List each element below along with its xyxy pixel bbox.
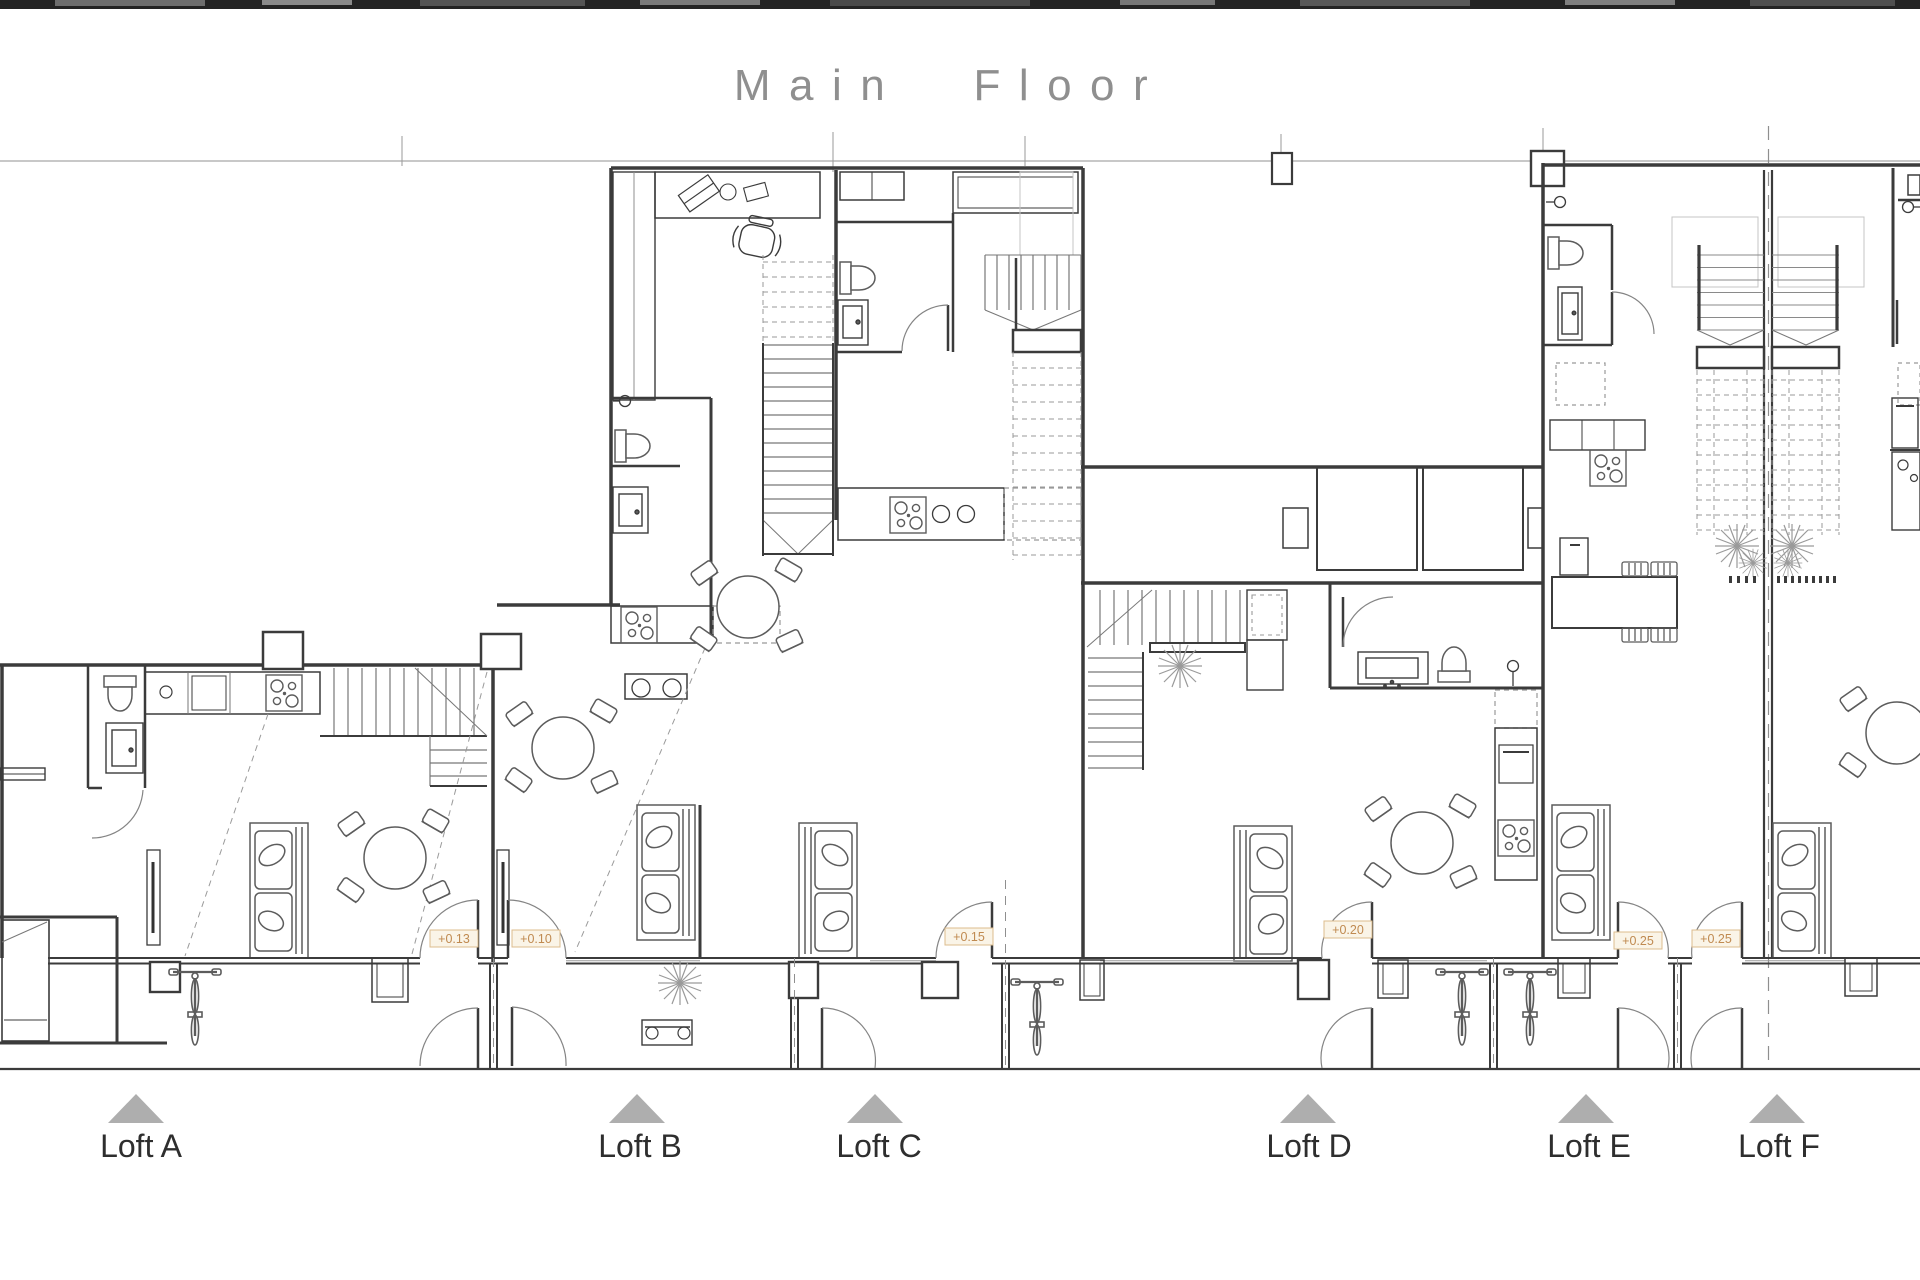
loft-e-label: Loft E	[1547, 1128, 1631, 1164]
marker-triangle	[609, 1094, 665, 1123]
plant-icon	[1739, 549, 1768, 578]
nightstand	[1283, 508, 1308, 548]
dining-table-rect	[1552, 562, 1677, 642]
stove-symbol	[266, 675, 302, 711]
toilet-symbol	[615, 430, 650, 462]
elevation-marker: +0.15	[945, 928, 993, 945]
unit-markers: Loft A Loft B Loft C Loft D Loft E Loft …	[100, 1094, 1820, 1164]
svg-text:+0.13: +0.13	[438, 932, 470, 946]
stove-symbol	[890, 497, 926, 533]
scan-edge-strip	[0, 0, 1920, 9]
sofa	[637, 805, 695, 940]
desk	[655, 172, 820, 218]
svg-text:+0.25: +0.25	[1622, 934, 1654, 948]
loft-f-label: Loft F	[1738, 1128, 1820, 1164]
svg-text:+0.10: +0.10	[520, 932, 552, 946]
wardrobe	[1898, 363, 1920, 405]
sink-symbol	[106, 723, 143, 773]
chair	[1622, 628, 1648, 642]
door-arc	[902, 305, 948, 351]
datum-lines	[0, 126, 1920, 1068]
loft-b-bathroom	[611, 396, 711, 534]
loft-f-kitchen	[1890, 398, 1920, 530]
toilet-symbol	[1548, 237, 1583, 269]
stool	[632, 679, 650, 697]
bike-icon	[1436, 969, 1488, 1045]
dining-table	[1839, 683, 1920, 778]
chair	[1622, 562, 1648, 576]
loft-a-label: Loft A	[100, 1128, 183, 1164]
tv-console	[147, 850, 160, 945]
loft-c-kitchen	[838, 488, 1081, 540]
marker-triangle	[1280, 1094, 1336, 1123]
sink-symbol	[838, 300, 868, 345]
dining-table	[337, 808, 451, 903]
sink-symbol	[1560, 538, 1588, 575]
nightstand	[1528, 508, 1543, 548]
shelf	[0, 768, 45, 780]
svg-text:+0.20: +0.20	[1332, 923, 1364, 937]
sink-symbol	[613, 487, 648, 533]
sink-symbol	[1358, 652, 1428, 687]
door-arc	[1612, 292, 1654, 334]
sink-symbol	[1558, 287, 1582, 340]
floor-plan-svg: Main Floor	[0, 0, 1920, 1280]
wardrobe	[1556, 363, 1605, 405]
office-chair	[730, 213, 785, 261]
page-title: Main Floor	[734, 61, 1166, 110]
bed-symbol	[1317, 467, 1417, 570]
loft-c-label: Loft C	[836, 1128, 921, 1164]
sight-line	[575, 648, 705, 952]
loft-a-bedroom	[0, 917, 167, 1043]
bike-icon	[1011, 979, 1063, 1055]
sofa	[1773, 823, 1831, 958]
stool	[663, 679, 681, 697]
shower-symbol	[1555, 197, 1566, 208]
loft-a-unit	[0, 632, 521, 1043]
sink-symbol	[933, 506, 950, 523]
sofa	[799, 823, 857, 958]
dining-table	[1364, 793, 1478, 888]
column	[481, 634, 521, 669]
door-arc	[1343, 597, 1393, 647]
shower-symbol	[1903, 202, 1914, 213]
loft-c-unit	[690, 168, 1083, 958]
paver-dots	[1729, 576, 1836, 583]
bed-symbol	[1423, 467, 1523, 570]
column	[263, 632, 303, 669]
loft-c-bathroom	[836, 213, 953, 352]
door-arc	[92, 790, 143, 838]
loft-e-kitchen	[1550, 420, 1645, 575]
loft-d-bathroom	[1343, 597, 1519, 687]
loft-c-closets	[840, 172, 1078, 213]
marker-triangle	[108, 1094, 164, 1123]
stove-symbol	[1590, 450, 1626, 486]
loft-d-label: Loft D	[1266, 1128, 1351, 1164]
marker-triangle	[847, 1094, 903, 1123]
elevation-marker: +0.10	[512, 930, 560, 947]
marker-triangle	[1558, 1094, 1614, 1123]
sofa	[1552, 805, 1610, 940]
bike-icon	[1504, 969, 1556, 1045]
vestibule-dividers	[490, 880, 1681, 1069]
elevation-marker: +0.25	[1614, 932, 1662, 949]
window-boxes	[372, 958, 1877, 1002]
street-wall	[0, 880, 1920, 1069]
plant-icon	[1158, 644, 1202, 688]
chair	[1651, 562, 1677, 576]
loft-b-label: Loft B	[598, 1128, 682, 1164]
stove-symbol	[621, 607, 657, 643]
loft-c-stairs	[985, 172, 1081, 560]
toilet-symbol	[840, 262, 875, 294]
floor-plan-page: Main Floor	[0, 0, 1920, 1280]
loft-a-kitchen	[145, 672, 320, 714]
beds	[1283, 467, 1543, 570]
svg-text:+0.25: +0.25	[1700, 932, 1732, 946]
elevation-marker: +0.13	[430, 930, 478, 947]
plant-icon	[658, 961, 702, 1005]
sink-symbol	[160, 686, 172, 698]
loft-d-unit	[1081, 467, 1543, 961]
plant-icon	[1774, 549, 1803, 578]
porch-columns	[150, 960, 1329, 999]
stove-symbol	[1498, 820, 1534, 856]
toilet-symbol	[104, 676, 136, 711]
bed-symbol	[2, 920, 49, 1041]
wardrobe	[613, 172, 655, 400]
loft-b-stairs	[763, 255, 833, 556]
dining-table	[505, 698, 619, 793]
dining-table	[690, 557, 804, 652]
elevation-marker: +0.25	[1692, 930, 1740, 947]
elevation-marker: +0.20	[1324, 921, 1372, 938]
loft-d-cabinets	[1247, 590, 1287, 690]
fridge-symbol	[192, 676, 226, 710]
work-bench	[642, 1020, 692, 1045]
marker-triangle	[1749, 1094, 1805, 1123]
sofa	[250, 823, 308, 958]
shower-symbol	[1508, 661, 1519, 672]
loft-a-bathroom	[88, 665, 145, 838]
toilet-symbol	[1438, 647, 1470, 682]
oven-symbol	[1499, 745, 1533, 783]
sofa	[1234, 826, 1292, 961]
loft-e-bathroom	[1543, 197, 1654, 346]
chair	[1651, 628, 1677, 642]
svg-text:+0.15: +0.15	[953, 930, 985, 944]
loft-d-kitchen	[1495, 690, 1537, 880]
loft-a-stairs	[320, 668, 487, 786]
